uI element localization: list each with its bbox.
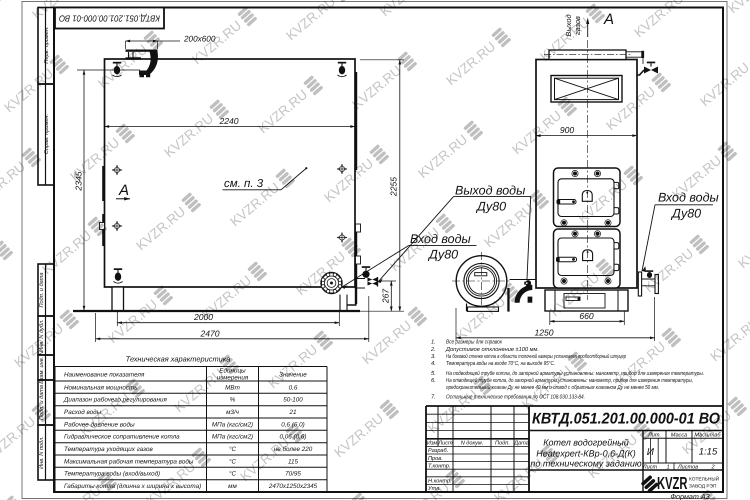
svg-text:И: И (647, 447, 655, 458)
svg-text:1:15: 1:15 (699, 447, 718, 458)
svg-text:Разраб.: Разраб. (428, 447, 448, 454)
svg-text:А: А (603, 11, 614, 28)
svg-text:2470: 2470 (199, 328, 219, 338)
svg-text:Температура воды на входе 70°: Температура воды на входе 70°С, на выход… (446, 360, 555, 367)
svg-text:ЗАВОД РЭП: ЗАВОД РЭП (689, 483, 717, 489)
svg-text:2470х1250х2345: 2470х1250х2345 (268, 483, 318, 490)
svg-text:Справ. примен.: Справ. примен. (44, 114, 50, 154)
svg-text:267: 267 (380, 288, 390, 305)
svg-text:Подп. и дата: Подп. и дата (38, 272, 45, 307)
svg-text:°С: °С (229, 446, 237, 453)
svg-text:Изм: Изм (427, 440, 438, 446)
svg-text:Листов: Листов (677, 465, 698, 471)
svg-text:Пров.: Пров. (428, 456, 443, 462)
svg-text:115: 115 (288, 458, 299, 465)
svg-text:Ду80: Ду80 (475, 200, 506, 214)
svg-text:7.: 7. (431, 394, 436, 400)
svg-text:Инв. N подл.: Инв. N подл. (38, 436, 45, 469)
svg-text:На подводящей трубе котла, до: На подводящей трубе котла, до запорной а… (446, 370, 704, 377)
svg-text:900: 900 (560, 125, 575, 135)
svg-text:МПа (кгс/см2): МПа (кгс/см2) (212, 434, 253, 441)
svg-text:N докум.: N докум. (461, 439, 484, 446)
svg-text:мм: мм (228, 483, 237, 490)
svg-text:21: 21 (288, 409, 296, 416)
svg-text:Гидравлическое сопративление к: Гидравлическое сопративление котла (64, 434, 180, 441)
svg-text:Выход воды: Выход воды (455, 184, 525, 198)
svg-text:0,6: 0,6 (289, 384, 298, 391)
svg-text:Масса: Масса (671, 432, 688, 438)
svg-text:Подп.: Подп. (495, 439, 510, 446)
svg-text:°С: °С (229, 458, 237, 465)
svg-text:3.: 3. (431, 353, 436, 360)
svg-text:Лист: Лист (437, 440, 453, 446)
svg-text:МВт: МВт (225, 384, 240, 391)
svg-text:2.: 2. (430, 346, 436, 353)
svg-text:см. п. 3: см. п. 3 (224, 178, 264, 190)
svg-text:Формат А3: Формат А3 (670, 492, 709, 500)
svg-text:м3/ч: м3/ч (226, 409, 240, 416)
svg-text:Температура уходящих газов: Температура уходящих газов (64, 446, 153, 453)
svg-text:4.: 4. (431, 361, 436, 367)
svg-text:Ду80: Ду80 (427, 248, 458, 262)
svg-text:Дата: Дата (513, 440, 529, 446)
svg-text:KVZR: KVZR (657, 473, 688, 493)
svg-text:2255: 2255 (389, 177, 399, 197)
svg-text:КОТЕЛЬНЫЙ: КОТЕЛЬНЫЙ (689, 476, 720, 483)
svg-text:Все размеры для справок: Все размеры для справок (446, 339, 502, 346)
svg-text:А: А (118, 182, 129, 199)
svg-text:Ду80: Ду80 (670, 207, 701, 221)
svg-text:Температура воды (вход/выход): Температура воды (вход/выход) (64, 471, 160, 478)
svg-text:1250: 1250 (534, 327, 553, 337)
svg-text:Наименование показателя: Наименование показателя (64, 371, 145, 378)
svg-text:МПа (кгс/см2): МПа (кгс/см2) (212, 421, 253, 428)
svg-text:1.: 1. (431, 340, 436, 346)
svg-text:50-100: 50-100 (283, 397, 303, 404)
svg-text:5.: 5. (431, 371, 436, 377)
svg-text:КВТД.051.201.00.000-01 ВО: КВТД.051.201.00.000-01 ВО (532, 411, 720, 428)
svg-text:Максимальная рабочая температу: Максимальная рабочая температура воды (64, 458, 194, 465)
svg-text:На боковой стенке котла в обла: На боковой стенке котла в области топочн… (446, 353, 627, 360)
svg-text:КВТД.051.201.00.000-01 ВО: КВТД.051.201.00.000-01 ВО (59, 14, 160, 24)
svg-text:1: 1 (666, 465, 669, 471)
svg-text:Взам. инв. N: Взам. инв. N (39, 350, 45, 384)
svg-text:660: 660 (579, 311, 594, 321)
svg-text:Перв. примен.: Перв. примен. (44, 26, 50, 63)
svg-text:Техническая характеристика: Техническая характеристика (126, 355, 231, 364)
svg-text:Т.контр.: Т.контр. (428, 463, 451, 469)
svg-text:Допустимое отклонение ±100 мм: Допустимое отклонение ±100 мм. (445, 346, 539, 353)
svg-text:Лист: Лист (642, 465, 658, 471)
svg-text:70/95: 70/95 (285, 471, 301, 478)
svg-text:%: % (230, 397, 236, 404)
svg-text:°С: °С (229, 471, 237, 478)
svg-text:6.: 6. (431, 377, 436, 384)
